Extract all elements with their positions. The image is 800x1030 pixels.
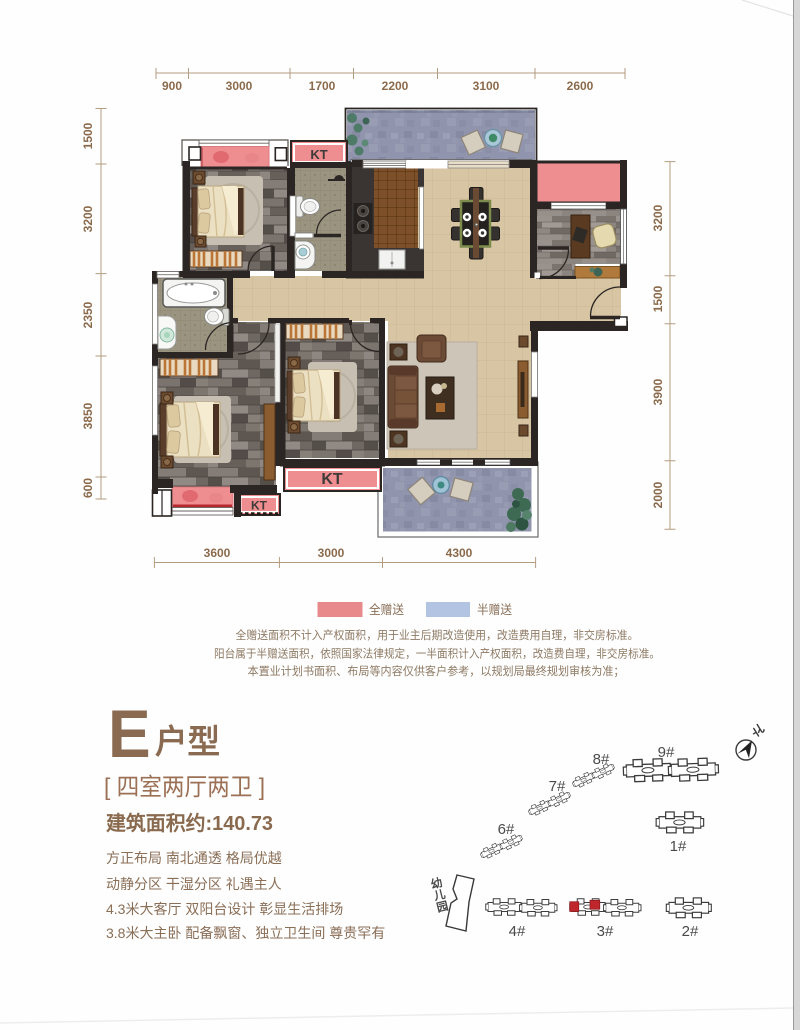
svg-text:1500: 1500 <box>651 285 665 312</box>
svg-text:2#: 2# <box>682 923 699 940</box>
svg-text:3100: 3100 <box>473 79 500 93</box>
svg-text:3200: 3200 <box>651 204 665 231</box>
svg-text:本置业计划书面积、布局等内容仅供客户参考，以规划局最终规划审: 本置业计划书面积、布局等内容仅供客户参考，以规划局最终规划审核为准； <box>248 664 625 678</box>
svg-text:900: 900 <box>162 79 182 93</box>
svg-text:3200: 3200 <box>81 205 95 232</box>
svg-text:建筑面积约:140.73: 建筑面积约:140.73 <box>106 811 273 835</box>
svg-text:KT: KT <box>310 147 327 162</box>
svg-text:2200: 2200 <box>382 79 409 93</box>
svg-text:全赠送: 全赠送 <box>369 602 404 617</box>
svg-text:方正布局 南北通透 格局优越: 方正布局 南北通透 格局优越 <box>106 850 282 866</box>
svg-text:全赠送面积不计入产权面积，用于业主后期改造使用，改造费用自理: 全赠送面积不计入产权面积，用于业主后期改造使用，改造费用自理，非交房标准。 <box>236 628 639 642</box>
svg-text:2350: 2350 <box>81 301 95 328</box>
svg-text:2000: 2000 <box>651 481 665 508</box>
svg-text:3900: 3900 <box>651 378 665 405</box>
svg-text:动静分区 干湿分区 礼遇主人: 动静分区 干湿分区 礼遇主人 <box>106 876 282 892</box>
svg-text:4300: 4300 <box>446 546 473 560</box>
svg-text:6#: 6# <box>498 821 515 838</box>
svg-text:E: E <box>108 695 151 771</box>
svg-text:3#: 3# <box>597 923 614 940</box>
svg-text:KT: KT <box>251 499 268 513</box>
svg-text:3000: 3000 <box>318 546 345 560</box>
svg-text:1700: 1700 <box>309 79 336 93</box>
svg-text:7#: 7# <box>549 778 566 795</box>
svg-text:3600: 3600 <box>204 546 231 560</box>
svg-text:1500: 1500 <box>81 122 95 149</box>
svg-text:600: 600 <box>81 478 95 498</box>
svg-text:4#: 4# <box>509 923 526 940</box>
svg-text:2600: 2600 <box>567 79 594 93</box>
svg-text:3000: 3000 <box>226 79 253 93</box>
svg-text:3850: 3850 <box>81 402 95 429</box>
svg-text:KT: KT <box>321 471 343 488</box>
svg-text:3.8米大主卧 配备飘窗、独立卫生间 尊贵罕有: 3.8米大主卧 配备飘窗、独立卫生间 尊贵罕有 <box>106 925 385 941</box>
svg-text:4.3米大客厅 双阳台设计 彰显生活排场: 4.3米大客厅 双阳台设计 彰显生活排场 <box>106 901 343 917</box>
svg-text:[ 四室两厅两卫 ]: [ 四室两厅两卫 ] <box>104 774 265 801</box>
svg-text:8#: 8# <box>593 751 610 768</box>
svg-text:阳台属于半赠送面积，依照国家法律规定，一半面积计入产权面积，: 阳台属于半赠送面积，依照国家法律规定，一半面积计入产权面积，改造费自理，非交房标… <box>214 647 660 661</box>
svg-text:9#: 9# <box>658 744 675 761</box>
svg-text:户型: 户型 <box>155 723 220 760</box>
svg-text:1#: 1# <box>670 838 687 855</box>
svg-text:半赠送: 半赠送 <box>477 602 512 617</box>
